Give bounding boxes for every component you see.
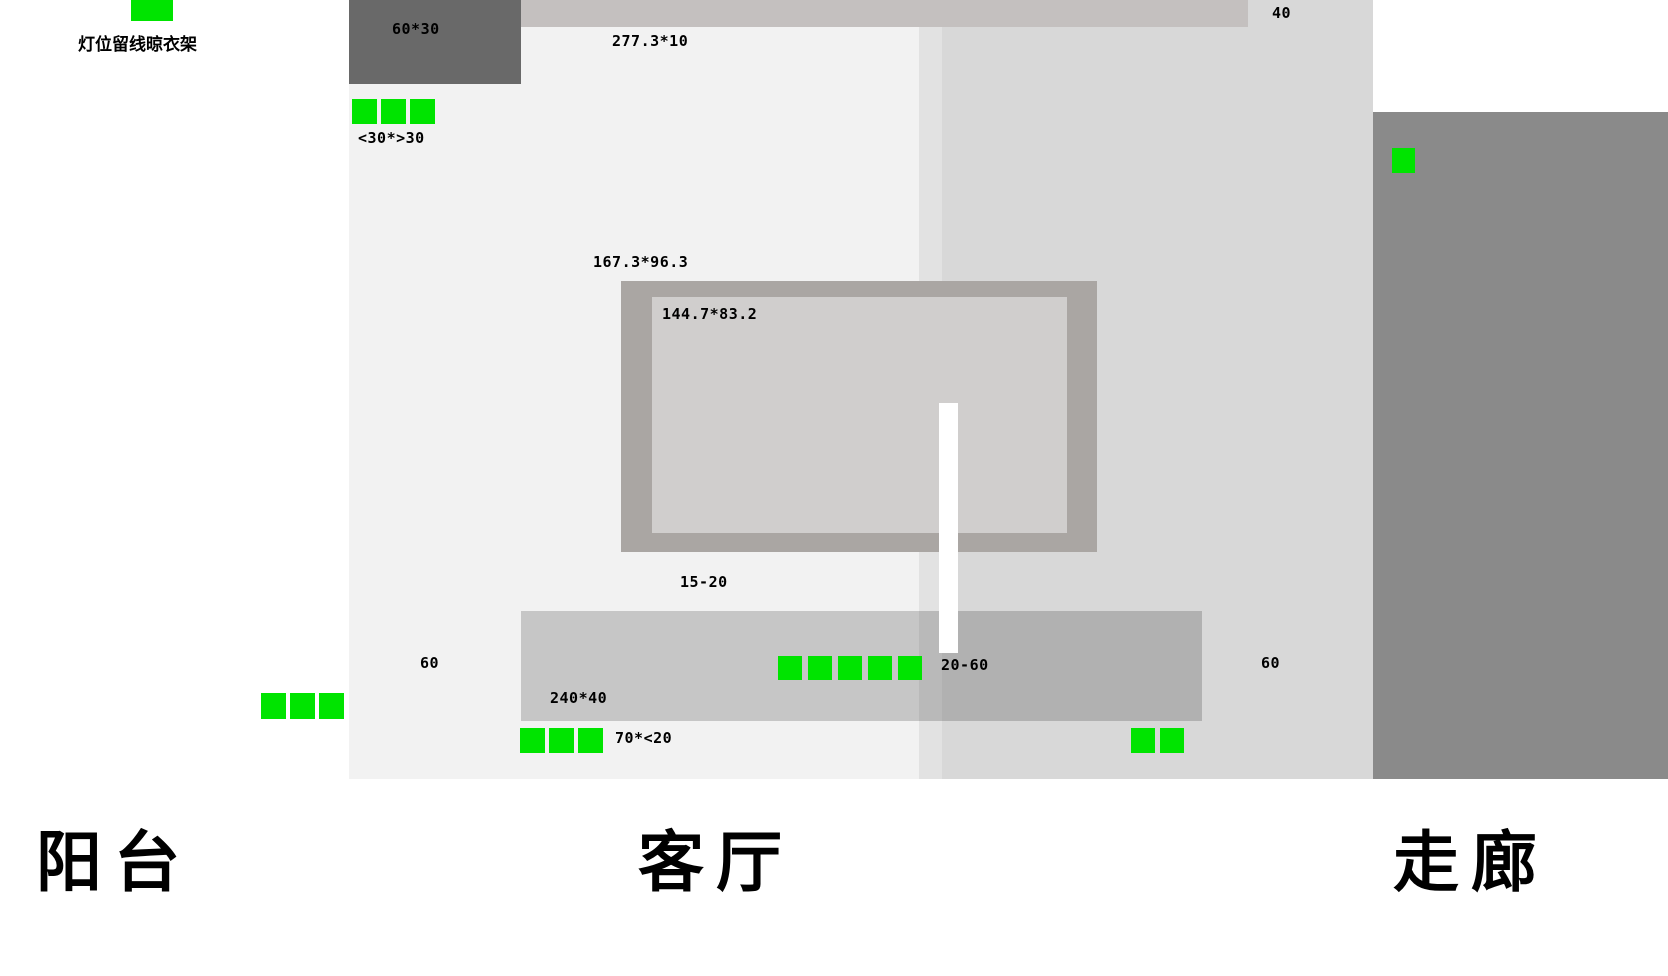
room-label-living-room: 客厅 — [638, 827, 794, 901]
sofa-wall-dimension-label: 240*40 — [550, 690, 607, 706]
spotlight-marker[interactable] — [520, 728, 545, 753]
spotlight-marker[interactable] — [290, 693, 315, 719]
spotlight-marker[interactable] — [808, 656, 832, 680]
bottom-spot-row-label: 70*<20 — [615, 730, 672, 746]
spotlight-marker[interactable] — [1131, 728, 1155, 753]
spotlight-marker[interactable] — [868, 656, 892, 680]
mid-spot-row-label: 20-60 — [941, 657, 989, 673]
spotlight-marker[interactable] — [319, 693, 344, 719]
top-spotlight-row — [352, 99, 435, 124]
room-label-balcony: 阳台 — [36, 827, 192, 901]
tv-stand-bar[interactable] — [939, 403, 958, 653]
spotlight-marker[interactable] — [578, 728, 603, 753]
left-gap-label: 60 — [420, 655, 439, 671]
spotlight-marker[interactable] — [381, 99, 406, 124]
beam-span-label: 277.3*10 — [612, 33, 688, 49]
balcony-spotlight-row — [261, 693, 344, 719]
ceiling-beam-bar[interactable] — [473, 0, 1248, 27]
top-spot-row-label: <30*>30 — [358, 130, 425, 146]
cabinet-block[interactable] — [349, 0, 521, 84]
clothes-rack-light-marker[interactable] — [131, 0, 173, 21]
tv-screen[interactable]: 144.7*83.2 — [652, 297, 1067, 533]
clothes-rack-note: 灯位留线晾衣架 — [78, 30, 197, 55]
bottom-spotlight-row — [520, 728, 603, 753]
floorplan-canvas: 16 40 277.3*10 60*30 灯位留线晾衣架 <30*>30 167… — [0, 0, 1668, 976]
spotlight-marker[interactable] — [352, 99, 377, 124]
spotlight-marker[interactable] — [1160, 728, 1184, 753]
spotlight-marker[interactable] — [549, 728, 574, 753]
tv-outer-frame[interactable]: 144.7*83.2 — [621, 281, 1097, 552]
corridor-region — [1373, 112, 1668, 779]
spotlight-marker[interactable] — [261, 693, 286, 719]
tv-outer-dimension-label: 167.3*96.3 — [593, 254, 688, 270]
cabinet-dimension-label: 60*30 — [392, 21, 440, 37]
spotlight-marker[interactable] — [778, 656, 802, 680]
spotlight-marker[interactable] — [898, 656, 922, 680]
spotlight-marker[interactable] — [410, 99, 435, 124]
beam-right-label: 40 — [1272, 5, 1291, 21]
room-label-corridor: 走廊 — [1393, 827, 1549, 901]
right-gap-label: 60 — [1261, 655, 1280, 671]
tv-screen-dimension-label: 144.7*83.2 — [662, 306, 757, 322]
tv-gap-label: 15-20 — [680, 574, 728, 590]
mid-spotlight-row — [778, 656, 922, 680]
spotlight-marker[interactable] — [838, 656, 862, 680]
right-spotlight-pair — [1131, 728, 1184, 753]
corridor-light-marker[interactable] — [1392, 148, 1415, 173]
